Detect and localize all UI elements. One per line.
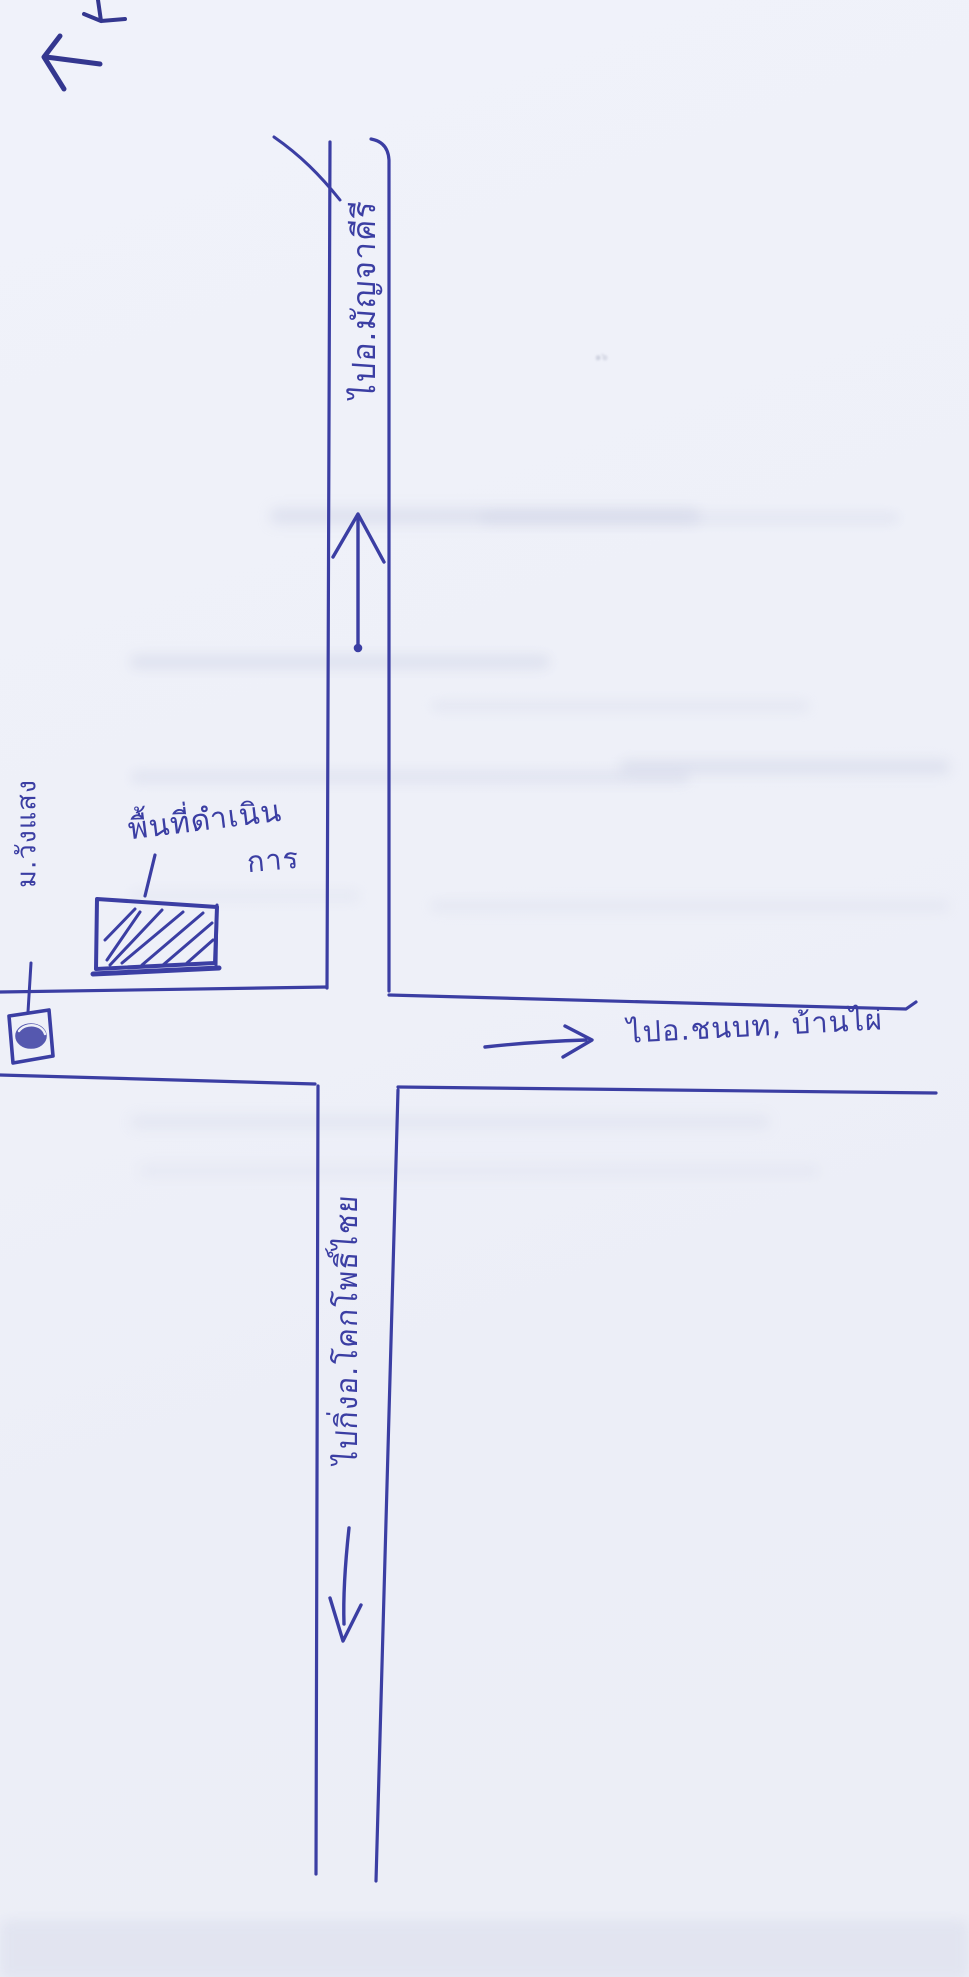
road-label-mancha-khiri: ไปอ.มัญจาคีรี <box>348 139 380 461</box>
site-building <box>93 899 219 974</box>
north-arrow-icon <box>44 0 125 89</box>
site-label-connector <box>145 855 155 896</box>
scanned-hand-drawn-map: ๑๖ <box>0 0 969 1977</box>
hatch-lines <box>105 909 213 965</box>
road-label-khok-pho-chai: ไปกิ่งอ.โคกโพธิ์ไชย <box>333 1154 363 1506</box>
up-arrow-icon <box>333 514 384 651</box>
right-arrow-icon <box>485 1026 592 1057</box>
left-landmark-marker <box>9 963 53 1063</box>
down-arrow-icon <box>330 1528 361 1641</box>
map-sketch-strokes <box>0 0 969 1977</box>
left-landmark-label: ม.วังแสง <box>14 704 41 964</box>
site-label-line2: การ <box>237 843 309 878</box>
